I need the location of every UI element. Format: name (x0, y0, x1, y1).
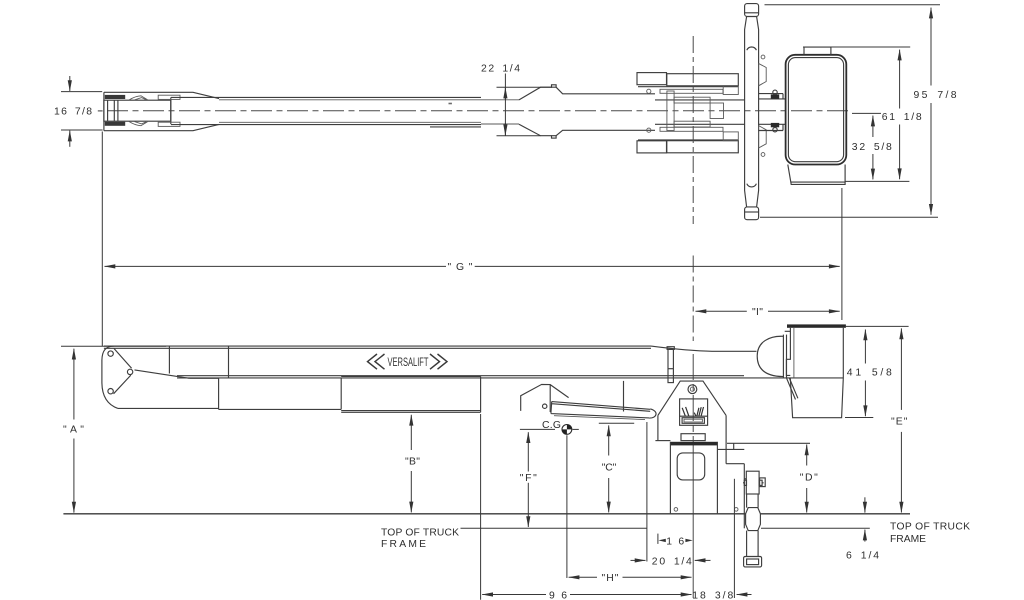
svg-text:"B": "B" (405, 456, 420, 467)
svg-text:"C": "C" (602, 463, 617, 474)
svg-text:6 1/4: 6 1/4 (846, 551, 879, 562)
svg-text:"H": "H" (602, 573, 619, 584)
svg-text:FRAME: FRAME (890, 534, 926, 545)
svg-text:"D": "D" (800, 472, 818, 483)
svg-text:C.G: C.G (542, 420, 561, 431)
svg-text:TOP OF TRUCK: TOP OF TRUCK (381, 528, 459, 539)
svg-text:TOP OF TRUCK: TOP OF TRUCK (890, 521, 970, 532)
svg-text:"E": "E" (891, 417, 908, 428)
svg-text:"F": "F" (520, 473, 537, 484)
svg-text:16 7/8: 16 7/8 (54, 107, 92, 118)
svg-text:"A": "A" (63, 425, 84, 436)
svg-text:"I": "I" (752, 307, 763, 318)
svg-text:VERSALIFT: VERSALIFT (388, 355, 429, 369)
